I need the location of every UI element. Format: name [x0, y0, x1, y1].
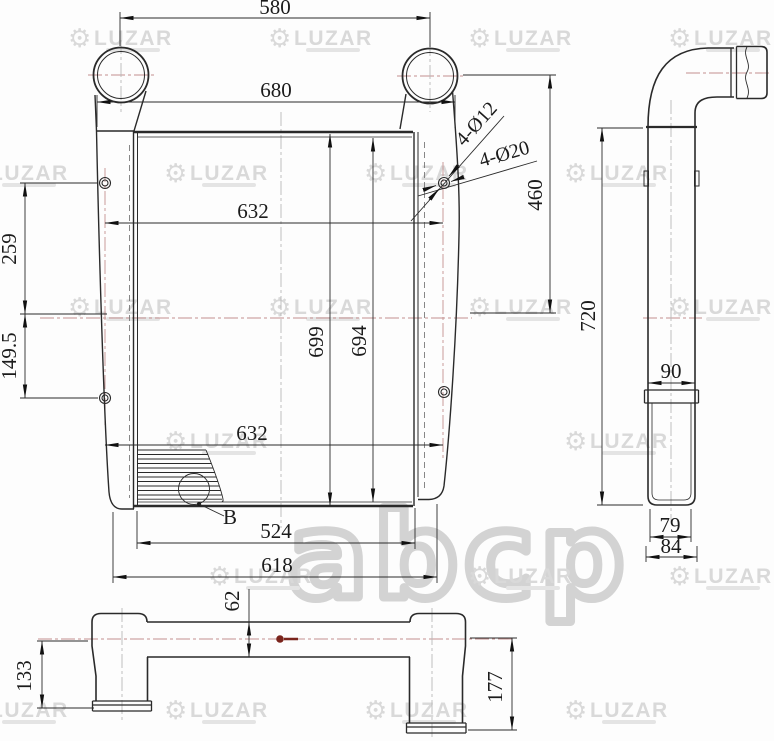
gear-icon: ⚙	[564, 427, 587, 457]
gear-icon: ⚙	[468, 562, 491, 592]
dim-149-5: 149.5	[0, 332, 21, 379]
dim-133: 133	[12, 660, 36, 692]
dim-524: 524	[260, 519, 292, 543]
side-elbow-outer	[648, 48, 734, 127]
side-pipe-end-fitting	[737, 47, 768, 99]
dim-62: 62	[220, 591, 244, 612]
luzar-watermark: LUZAR	[590, 699, 669, 722]
mount-hole-lower-right	[439, 387, 450, 398]
gear-icon: ⚙	[68, 293, 91, 323]
luzar-watermark: LUZAR	[0, 699, 69, 722]
luzar-watermark: LUZAR	[494, 565, 573, 588]
dim-580: 580	[259, 0, 291, 19]
dim-694: 694	[347, 325, 371, 357]
technical-drawing-canvas: abcp ⚙LUZAR ⚙LUZAR ⚙LUZAR ⚙LUZAR ⚙LUZAR …	[0, 0, 774, 741]
luzar-watermark: LUZAR	[294, 296, 373, 319]
luzar-watermark: LUZAR	[294, 27, 373, 50]
dim-618: 618	[261, 553, 293, 577]
luzar-watermark: LUZAR	[694, 296, 773, 319]
dim-259: 259	[0, 233, 21, 265]
gear-icon: ⚙	[468, 293, 491, 323]
side-pipe-break-squiggle	[746, 47, 749, 98]
gear-icon: ⚙	[68, 24, 91, 54]
luzar-watermark: LUZAR	[494, 27, 573, 50]
dim-699: 699	[304, 326, 328, 358]
gear-icon: ⚙	[364, 696, 387, 726]
dim-90: 90	[661, 359, 682, 383]
callout-4-d12: 4-Ø12	[451, 98, 502, 151]
gear-icon: ⚙	[268, 24, 291, 54]
dim-177: 177	[483, 671, 507, 703]
luzar-watermark: LUZAR	[190, 699, 269, 722]
dim-632-upper: 632	[237, 199, 269, 223]
bottom-left-elbow	[92, 614, 148, 702]
watermark-layer: abcp ⚙LUZAR ⚙LUZAR ⚙LUZAR ⚙LUZAR ⚙LUZAR …	[0, 24, 773, 726]
luzar-watermark: LUZAR	[0, 162, 69, 185]
side-elbow-inner	[695, 97, 734, 127]
callout-4-d20: 4-Ø20	[477, 137, 532, 172]
gear-icon: ⚙	[564, 696, 587, 726]
dim-84: 84	[661, 534, 683, 558]
side-duct-collar	[645, 390, 699, 403]
luzar-watermark: LUZAR	[390, 699, 469, 722]
bottom-right-pipe-flange	[407, 723, 467, 733]
fin-hatch	[138, 450, 223, 501]
detail-b-circle	[179, 474, 210, 505]
dim-680: 680	[260, 78, 292, 102]
gear-icon: ⚙	[468, 24, 491, 54]
intercooler-drawing: abcp ⚙LUZAR ⚙LUZAR ⚙LUZAR ⚙LUZAR ⚙LUZAR …	[0, 0, 774, 741]
dim-460: 460	[523, 179, 547, 211]
gear-icon: ⚙	[668, 293, 691, 323]
gear-icon: ⚙	[668, 24, 691, 54]
gear-icon: ⚙	[668, 562, 691, 592]
gear-icon: ⚙	[164, 696, 187, 726]
gear-icon: ⚙	[364, 159, 387, 189]
gear-icon: ⚙	[164, 427, 187, 457]
gear-icon: ⚙	[268, 293, 291, 323]
mount-holes	[100, 178, 450, 404]
dim-720: 720	[576, 300, 600, 332]
abcp-logo-text: abcp	[288, 487, 631, 625]
centerlines	[38, 40, 772, 737]
gear-icon: ⚙	[164, 159, 187, 189]
gear-icon: ⚙	[564, 159, 587, 189]
dim-632-lower: 632	[236, 421, 268, 445]
bottom-view	[92, 614, 466, 734]
luzar-watermark: LUZAR	[494, 296, 573, 319]
detail-b-label: B	[223, 505, 237, 529]
front-view	[94, 48, 460, 517]
luzar-watermark: LUZAR	[190, 162, 269, 185]
abcp-watermark: abcp	[288, 487, 631, 625]
luzar-watermark: LUZAR	[94, 27, 173, 50]
red-marker-dot	[276, 635, 284, 643]
luzar-watermark: LUZAR	[694, 565, 773, 588]
right-tank-outline	[400, 91, 459, 500]
